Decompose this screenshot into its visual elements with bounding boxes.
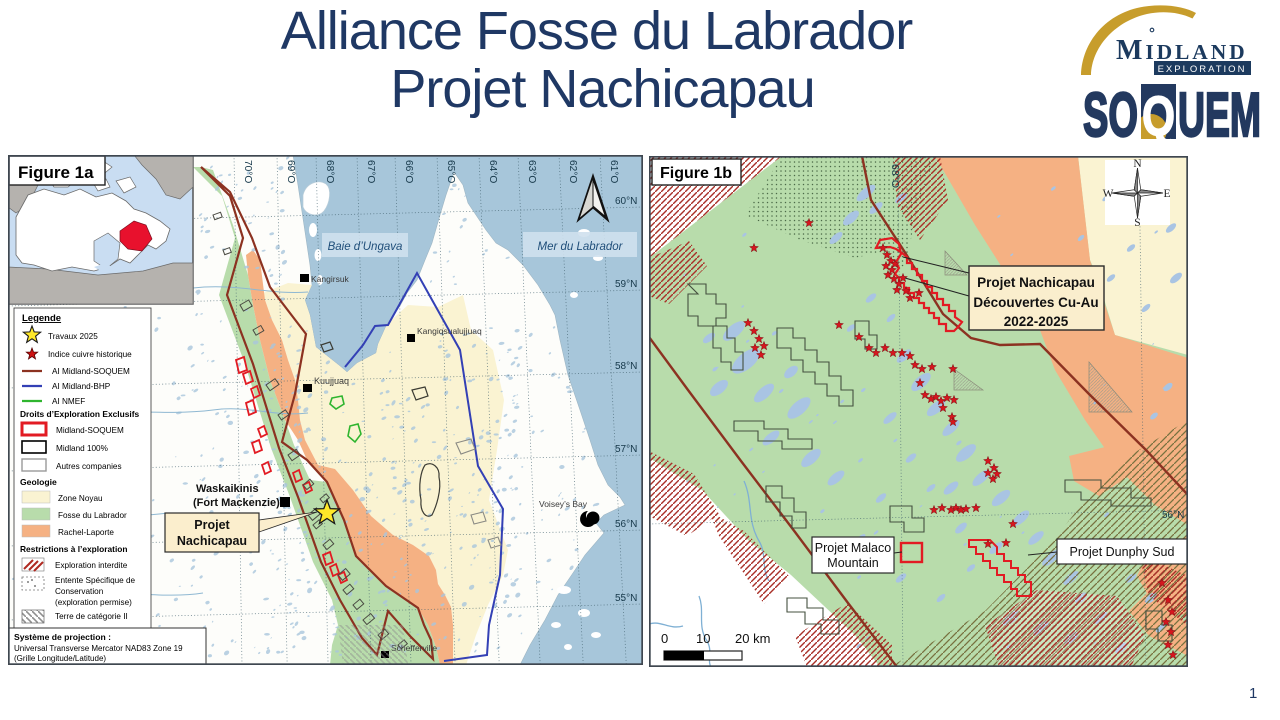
svg-text:62°O: 62°O: [567, 160, 578, 183]
svg-text:N: N: [1133, 158, 1142, 170]
svg-text:EXPLORATION: EXPLORATION: [1158, 64, 1247, 75]
svg-text:S: S: [1134, 217, 1140, 229]
svg-text:56°N: 56°N: [615, 519, 637, 530]
svg-text:Travaux 2025: Travaux 2025: [48, 332, 98, 341]
svg-text:56°N: 56°N: [1162, 510, 1184, 521]
svg-text:Projet Malaco: Projet Malaco: [815, 541, 891, 555]
svg-text:Terre de catégorie II: Terre de catégorie II: [55, 612, 128, 621]
svg-text:Rachel-Laporte: Rachel-Laporte: [58, 528, 114, 537]
svg-text:Baie d’Ungava: Baie d’Ungava: [328, 241, 403, 253]
svg-text:E: E: [1163, 188, 1170, 200]
svg-text:Droits d’Exploration Exclusifs: Droits d’Exploration Exclusifs: [20, 409, 139, 419]
svg-text:Universal Transverse Mercator: Universal Transverse Mercator NAD83 Zone…: [14, 644, 183, 653]
svg-text:68°O: 68°O: [324, 160, 335, 183]
svg-text:Mer du Labrador: Mer du Labrador: [537, 241, 623, 253]
svg-text:SO: SO: [1083, 81, 1138, 150]
svg-text:Figure 1a: Figure 1a: [18, 163, 94, 182]
svg-text:Conservation: Conservation: [55, 587, 104, 596]
svg-text:UEM: UEM: [1178, 81, 1261, 150]
svg-text:Geologie: Geologie: [20, 477, 57, 487]
svg-text:Système de projection :: Système de projection :: [14, 632, 111, 642]
svg-text:Projet Dunphy Sud: Projet Dunphy Sud: [1070, 545, 1175, 559]
svg-text:W: W: [1103, 188, 1114, 200]
svg-text:AI Midland-SOQUEM: AI Midland-SOQUEM: [52, 367, 130, 376]
svg-text:Découvertes Cu-Au: Découvertes Cu-Au: [973, 295, 1098, 310]
svg-text:69°O: 69°O: [285, 160, 296, 183]
svg-text:Voisey’s Bay: Voisey’s Bay: [539, 499, 588, 509]
svg-text:(exploration permise): (exploration permise): [55, 598, 132, 607]
svg-text:Indice cuivre historique: Indice cuivre historique: [48, 350, 132, 359]
svg-text:60°N: 60°N: [615, 196, 637, 207]
svg-text:Kuujjuaq: Kuujjuaq: [314, 376, 349, 386]
svg-text:Legende: Legende: [22, 313, 61, 324]
svg-text:Midland-SOQUEM: Midland-SOQUEM: [56, 426, 124, 435]
svg-text:10: 10: [696, 631, 710, 646]
svg-text:63°O: 63°O: [526, 160, 537, 183]
svg-text:55°N: 55°N: [615, 593, 637, 604]
svg-text:57°N: 57°N: [615, 444, 637, 455]
svg-text:70°O: 70°O: [242, 160, 253, 183]
svg-text:64°O: 64°O: [487, 160, 498, 183]
svg-text:(Grille Longitude/Latitude): (Grille Longitude/Latitude): [14, 654, 106, 663]
svg-text:Kangiqsualujjuaq: Kangiqsualujjuaq: [417, 326, 482, 336]
svg-text:AI NMEF: AI NMEF: [52, 397, 85, 406]
svg-text:Projet: Projet: [194, 518, 230, 532]
svg-text:20 km: 20 km: [735, 631, 770, 646]
svg-text:2022-2025: 2022-2025: [1004, 314, 1069, 329]
svg-text:68°O: 68°O: [889, 164, 901, 188]
svg-text:Midland 100%: Midland 100%: [56, 444, 108, 453]
svg-text:Entente Spécifique de: Entente Spécifique de: [55, 576, 136, 585]
svg-text:Nachicapau: Nachicapau: [177, 534, 247, 548]
svg-text:Q: Q: [1142, 84, 1175, 147]
svg-text:(Fort Mackenzie): (Fort Mackenzie): [193, 497, 280, 509]
svg-text:Fosse du Labrador: Fosse du Labrador: [58, 511, 127, 520]
svg-text:Exploration interdite: Exploration interdite: [55, 561, 128, 570]
svg-text:Restrictions à l’exploration: Restrictions à l’exploration: [20, 544, 128, 554]
svg-text:Kangirsuk: Kangirsuk: [311, 274, 350, 284]
svg-text:59°N: 59°N: [615, 279, 637, 290]
svg-text:Waskaikinis: Waskaikinis: [196, 483, 259, 495]
svg-text:61°O: 61°O: [608, 160, 619, 183]
svg-text:Autres companies: Autres companies: [56, 462, 122, 471]
svg-text:66°O: 66°O: [403, 160, 414, 183]
svg-text:Figure 1b: Figure 1b: [660, 165, 732, 182]
svg-text:AI Midland-BHP: AI Midland-BHP: [52, 382, 111, 391]
svg-text:67°O: 67°O: [365, 160, 376, 183]
svg-text:Projet Nachicapau: Projet Nachicapau: [977, 275, 1095, 290]
svg-text:Mountain: Mountain: [827, 556, 878, 570]
svg-text:Zone Noyau: Zone Noyau: [58, 494, 103, 503]
svg-text:65°O: 65°O: [445, 160, 456, 183]
svg-text:58°N: 58°N: [615, 361, 637, 372]
svg-text:0: 0: [661, 631, 668, 646]
